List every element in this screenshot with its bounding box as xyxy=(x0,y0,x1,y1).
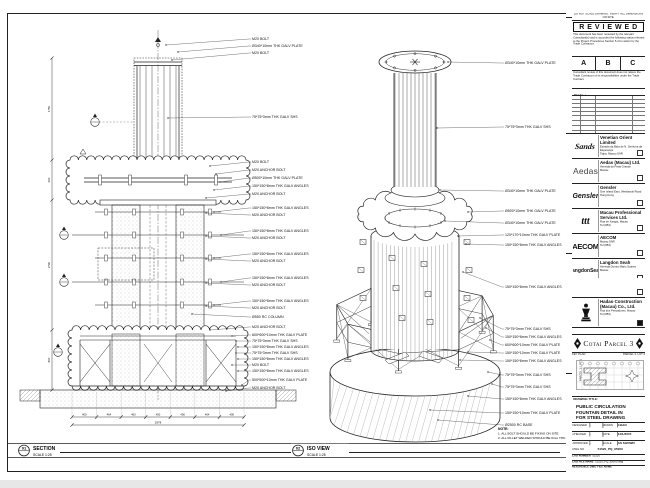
key-plan-drawing xyxy=(576,360,644,390)
leader-label: M20 ANCHOR BOLT xyxy=(252,325,286,329)
strip-note: DO NOT SCALE DRAWING. VERIFY ALL DIMENSI… xyxy=(572,13,645,21)
field-date-value: 14/1/2015 xyxy=(617,432,645,437)
dimension-total: 2978 xyxy=(155,420,162,424)
leader-label: Ø2500 RC BASE xyxy=(505,423,533,427)
status-checkbox[interactable] xyxy=(637,250,644,257)
consultant-row: GenslerGenslerOne Island East, Westlands… xyxy=(572,184,645,209)
dwg-no-value: 51520_PQ_95000 xyxy=(597,447,637,451)
status-checkbox-filled[interactable] xyxy=(637,320,644,327)
company-address: Macau SARTel (853) xyxy=(600,241,644,247)
consultant-row: AECOMAECOMMacau SARTel (853) xyxy=(572,234,645,259)
field-approved-label: APPROVED xyxy=(572,441,590,445)
leader-label: M20 ANCHOR BOLT xyxy=(252,236,286,240)
leader-label: M20 ANCHOR BOLT xyxy=(252,306,286,310)
project-title-band: Cotai Parcel 3 xyxy=(572,335,645,353)
leader-label: 150*150*8mm THK GALV ANGLES xyxy=(505,397,562,401)
company-address: Avenida da Praia GrandeMacau xyxy=(600,166,644,172)
field-drawn-label: DRAWN xyxy=(602,423,618,427)
company-name: Venetian Orient Limited xyxy=(600,136,644,146)
leader-label: Ø340*10mm THK GALV PLATE xyxy=(252,44,303,48)
drawing-canvas: 400464400450400464400297817506002700800M… xyxy=(0,0,650,488)
dimension-label: 400 xyxy=(82,412,87,416)
dimension-label: 464 xyxy=(205,412,210,416)
detail-flag-icon xyxy=(93,114,97,118)
iso-view-title: 02 ISO VIEW SCALE 1:25 xyxy=(293,445,330,457)
field-checked-label: CHECKED xyxy=(572,432,590,436)
leader-label: 150*150*10mm THK GALV PLATE xyxy=(505,351,561,355)
svg-text:SCALE 1:25: SCALE 1:25 xyxy=(33,453,52,457)
leader-label: 150*150*8mm THK GALV ANGLES xyxy=(252,299,309,303)
leader-label: Ø550 RC COLUMN xyxy=(252,315,284,319)
company-logo: Sands xyxy=(573,135,599,157)
company-address: Avenida Doutor Mário SoaresMacau xyxy=(600,266,644,272)
leader-label: 150*150*8mm THK GALV ANGLES xyxy=(252,206,309,210)
leader-label: 75*75*3mm THK GALV SHS xyxy=(252,351,298,355)
company-logo: Gensler xyxy=(573,185,599,207)
status-checkbox[interactable] xyxy=(637,175,644,182)
svg-text:01: 01 xyxy=(22,445,27,450)
svg-text:2. ALL FILLET WELDED SHOULD BE: 2. ALL FILLET WELDED SHOULD BE 6mm THK. xyxy=(498,436,566,440)
leader-label: 150*150*8mm THK GALV ANGLES xyxy=(252,357,309,361)
contractor-address: Rua dos Pescadores, MacauTel (853) xyxy=(600,310,644,316)
leader-label: 150*150*8mm THK GALV ANGLES xyxy=(252,345,309,349)
dimension-label: 1750 xyxy=(47,105,51,112)
ornament-icon xyxy=(574,338,581,349)
key-plan-parcel-right: PARCEL 3, LOT 2 xyxy=(623,353,645,356)
leader-label: 150*150*8mm THK GALV ANGLES xyxy=(252,252,309,256)
leader-label: 150*150*8mm THK GALV ANGLES xyxy=(505,359,562,363)
field-date-label: DATE xyxy=(602,432,618,436)
consultant-row: LangdonSeahLangdon SeahAvenida Doutor Má… xyxy=(572,259,645,278)
key-plan: KEY PLAN PARCEL 3, LOT 2 PARCEL 1, LOT 1… xyxy=(572,353,645,397)
company-logo: ttt xyxy=(573,210,599,232)
stamp-option-a[interactable]: A xyxy=(572,57,596,70)
field-scale-value: AS SHOWN xyxy=(617,441,645,446)
stamp-paragraph-1: This document has been reviewed by the r… xyxy=(572,33,645,47)
empty-consultant-row xyxy=(572,278,645,298)
leader-label: 150*150*8mm THK GALV ANGLES xyxy=(505,285,562,289)
leader-label: 150*150*8mm THK GALV ANGLES xyxy=(252,184,309,188)
svg-text:02: 02 xyxy=(296,445,301,450)
revision-table: C11/03/15FOR APPROVALWNB06/02/15FOR APPR… xyxy=(572,96,645,134)
dimension-label: 600 xyxy=(47,177,51,182)
leader-label: 75*75*3mm THK GALV SHS xyxy=(505,385,551,389)
field-drawn-value: CHAO xyxy=(617,423,645,428)
leader-label: M20 ANCHOR BOLT xyxy=(252,259,286,263)
leader-label: 150*150*8mm THK GALV ANGLES xyxy=(505,243,562,247)
leader-label: M20 ANCHOR BOLT xyxy=(252,283,286,287)
svg-text:SCALE 1:25: SCALE 1:25 xyxy=(307,453,326,457)
leader-label: M20 ANCHOR BOLT xyxy=(252,386,286,390)
company-logo: LangdonSeah xyxy=(573,260,599,278)
leader-label: M20 ANCHOR BOLT xyxy=(252,168,286,172)
leader-label: M20 BOLT xyxy=(252,160,270,164)
dimension-label: 450 xyxy=(156,412,161,416)
company-name: Macau Professional Services Ltd. xyxy=(600,211,644,221)
leader-label: Ø340*10mm THK GALV PLATE xyxy=(505,189,556,193)
detail-flag-icon xyxy=(56,344,60,348)
page-background-band xyxy=(0,480,650,488)
dimension-label: 400 xyxy=(180,412,185,416)
company-logo: Aedas xyxy=(573,160,599,182)
company-logo: AECOM xyxy=(573,235,599,257)
detail-flag-icon xyxy=(62,274,66,278)
leader-label: 150*150*8mm THK GALV ANGLES xyxy=(252,369,309,373)
drawing-title-block: DRAWING TITLE: PUBLIC CIRCULATION FOUNTA… xyxy=(572,397,645,423)
consultant-row: SandsVenetian Orient LimitedEstrada da B… xyxy=(572,134,645,159)
leader-label: 500*500*10mm THK GALV PLATE xyxy=(252,378,308,382)
section-view-title: 01 SECTION SCALE 1:25 xyxy=(19,445,56,457)
stamp-option-c[interactable]: C xyxy=(621,57,645,70)
stamp-paragraph-2: Consultant review of this document does … xyxy=(572,71,645,82)
view-titles: 01 SECTION SCALE 1:25 02 ISO VIEW SCALE … xyxy=(19,444,560,457)
svg-text:ISO VIEW: ISO VIEW xyxy=(307,446,330,452)
dwg-no-row: DWG NO 51520_PQ_95000 REV C xyxy=(572,447,645,455)
leader-label: 75*75*3mm THK GALV SHS xyxy=(252,339,298,343)
leader-label: 75*75*3mm THK GALV SHS xyxy=(505,327,551,331)
title-block: DO NOT SCALE DRAWING. VERIFY ALL DIMENSI… xyxy=(566,13,646,472)
drawing-title-line: FOR STEEL DRAWING xyxy=(572,415,645,421)
svg-text:NOTE:: NOTE: xyxy=(498,427,509,431)
status-checkbox[interactable] xyxy=(637,289,644,296)
review-stamp: R E V I E W E D This document has been r… xyxy=(572,21,645,96)
field-designed-label: DESIGNED xyxy=(572,423,590,427)
dwg-no-label: DWG NO xyxy=(572,447,586,451)
dimension-label: 464 xyxy=(107,412,112,416)
contractor-logo xyxy=(573,299,599,326)
iso-view-drawing: Ø340*10mm THK GALV PLATE75*75*3mm THK GA… xyxy=(330,51,562,442)
status-checkbox[interactable] xyxy=(637,225,644,232)
consultant-list: SandsVenetian Orient LimitedEstrada da B… xyxy=(572,134,645,278)
leader-label: M20 BOLT xyxy=(252,37,270,41)
field-scale-label: SCALE xyxy=(602,441,618,445)
reference-row: REFERENCE DWG FILE NAME xyxy=(572,466,645,472)
stamp-title: R E V I E W E D xyxy=(573,22,644,32)
dimension-label: 400 xyxy=(229,412,234,416)
company-address: One Island East, Westlands RoadHong Kong xyxy=(600,191,644,197)
drawing-title-label: DRAWING TITLE: xyxy=(572,397,645,401)
leader-label: 150*150*10mm THK GALV PLATE xyxy=(505,411,561,415)
ornament-icon xyxy=(636,338,643,349)
leader-label: 600*600*10mm THK GALV PLATE xyxy=(505,343,561,347)
leader-label: Ø340*10mm THK GALV PLATE xyxy=(505,61,556,65)
fields-grid: DESIGNED - DRAWN CHAO CHECKED - DATE 14/… xyxy=(572,423,645,447)
leader-label: M20 BOLT xyxy=(252,51,270,55)
stamp-option-b[interactable]: B xyxy=(596,57,620,70)
dimension-label: 2700 xyxy=(47,261,51,268)
leader-label: 75*75*3mm THK GALV SHS xyxy=(252,115,298,119)
project-title-label-row: PROJECT TITLE xyxy=(572,328,645,335)
section-view-drawing: 400464400450400464400297817506002700800M… xyxy=(20,30,309,427)
consultant-row: AedasAedas (Macau) Ltd.Avenida da Praia … xyxy=(572,159,645,184)
detail-flag-icon xyxy=(62,227,66,231)
leader-label: 120*170*10mm THK GALV PLATE xyxy=(505,233,561,237)
leader-label: 150*150*8mm THK GALV ANGLES xyxy=(252,229,309,233)
leader-label: 150*150*8mm THK GALV ANGLES xyxy=(505,335,562,339)
leader-label: M20 BOLT xyxy=(252,363,270,367)
leader-label: 75*75*3mm THK GALV SHS xyxy=(505,125,551,129)
dimension-label: 400 xyxy=(131,412,136,416)
status-checkbox[interactable] xyxy=(637,200,644,207)
contractor-block: Hadao Construction (Macau) Co., Ltd. Rua… xyxy=(572,298,645,328)
leader-label: 600*600*10mm THK GALV PLATE xyxy=(252,333,308,337)
leader-label: Ø500*10mm THK GALV PLATE xyxy=(505,209,556,213)
leader-label: M20 ANCHOR BOLT xyxy=(252,192,286,196)
status-checkbox[interactable] xyxy=(637,150,644,157)
project-title: Cotai Parcel 3 xyxy=(583,339,633,348)
leader-label: 150*150*8mm THK GALV ANGLES xyxy=(252,276,309,280)
svg-text:SECTION: SECTION xyxy=(33,446,56,452)
general-notes: NOTE: 1. ALL BOLT SHOULD BE FIXING ON SI… xyxy=(498,427,566,440)
leader-label: M20 ANCHOR BOLT xyxy=(252,213,286,217)
leader-label: Ø500*10mm THK GALV PLATE xyxy=(252,176,303,180)
leader-label: 75*75*3mm THK GALV SHS xyxy=(505,373,551,377)
drawing-sheet: 400464400450400464400297817506002700800M… xyxy=(0,0,650,480)
consultant-row: tttMacau Professional Services Ltd.Rua d… xyxy=(572,209,645,234)
contractor-name: Hadao Construction (Macau) Co., Ltd. xyxy=(600,300,644,310)
dimension-label: 800 xyxy=(47,357,51,362)
leader-label: Ø340*10mm THK GALV PLATE xyxy=(505,221,556,225)
key-plan-label: KEY PLAN xyxy=(572,353,585,356)
